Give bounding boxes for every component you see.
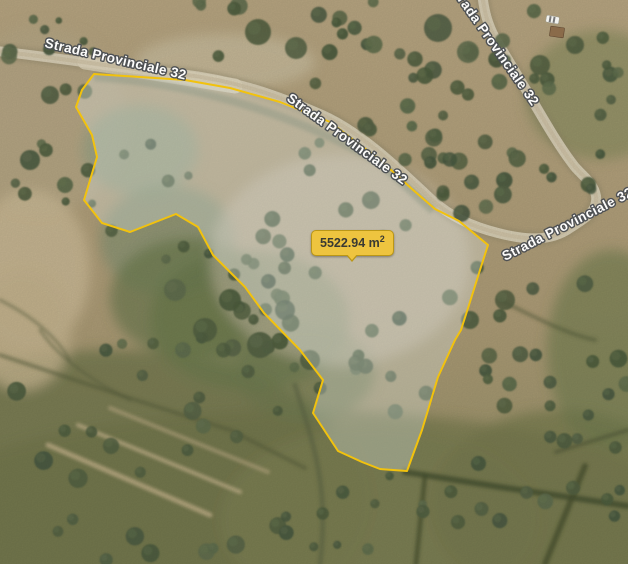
area-unit: m: [369, 236, 380, 250]
area-unit-exponent: 2: [380, 234, 385, 244]
area-measurement-tooltip: 5522.94 m2: [311, 230, 394, 256]
area-value: 5522.94: [320, 236, 365, 250]
satellite-map-view: Strada Provinciale 32 Strada Provinciale…: [0, 0, 628, 564]
shed-roof: [549, 26, 564, 38]
map-canvas[interactable]: Strada Provinciale 32 Strada Provinciale…: [0, 0, 628, 564]
